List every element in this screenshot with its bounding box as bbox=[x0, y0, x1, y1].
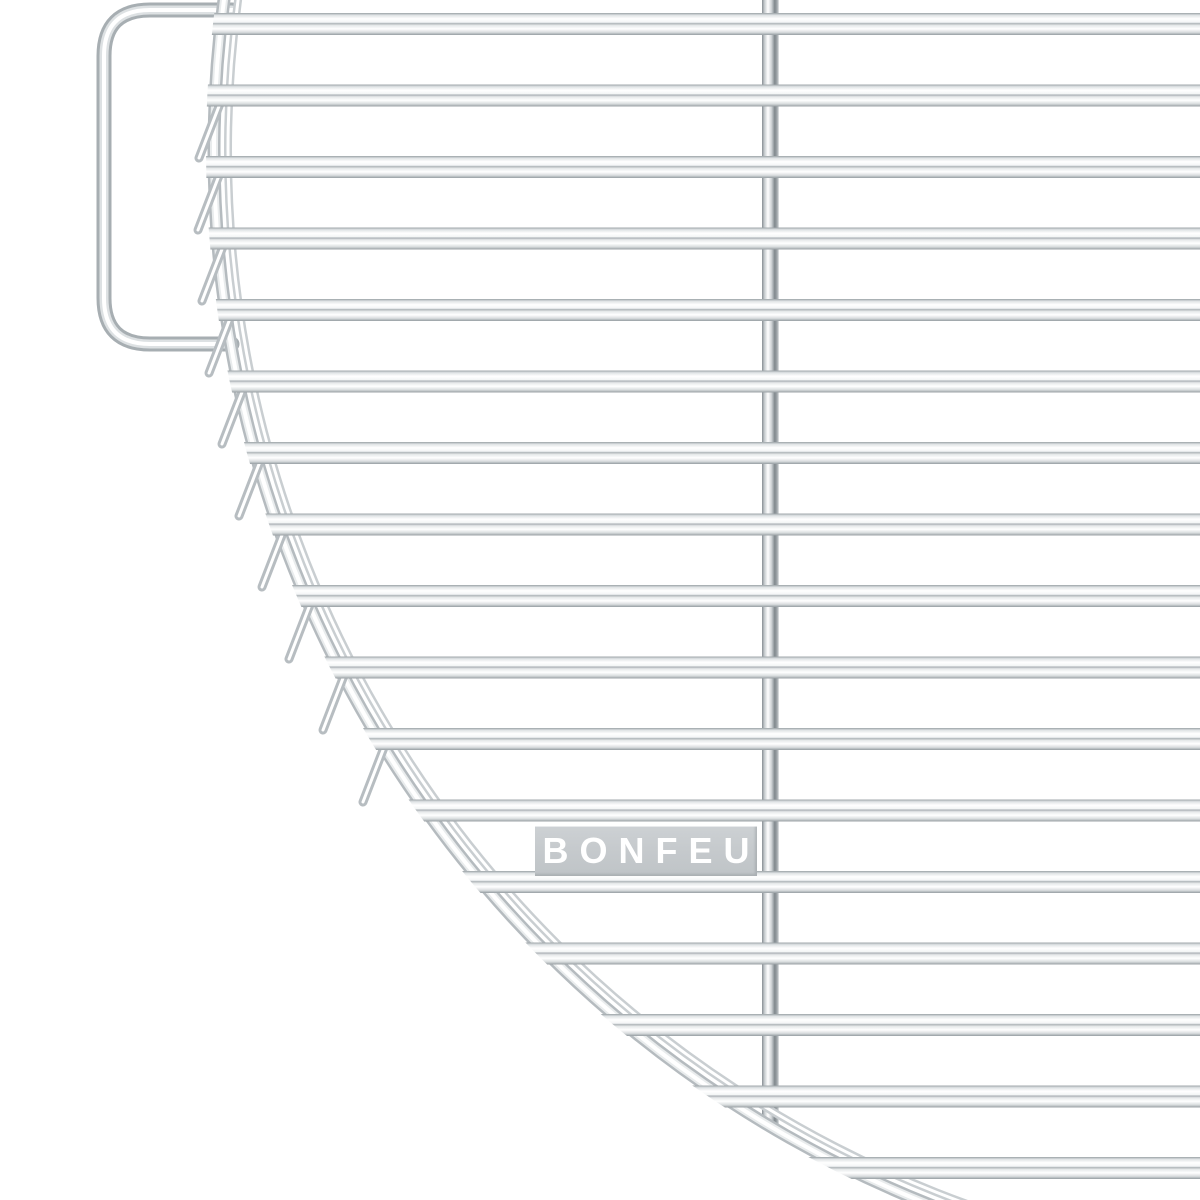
wire-end-stub bbox=[262, 530, 284, 587]
wire-end-stub bbox=[239, 459, 261, 516]
grate-wire bbox=[120, 1086, 1200, 1108]
grate-wire bbox=[120, 299, 1200, 321]
brand-badge-label: BONFEU bbox=[543, 833, 761, 869]
wire-end-stub bbox=[363, 745, 385, 802]
brand-badge: BONFEU bbox=[535, 826, 757, 876]
grate-wire bbox=[120, 585, 1200, 607]
grate-wire bbox=[120, 85, 1200, 107]
grate-wire bbox=[120, 156, 1200, 178]
grill-grate-illustration bbox=[0, 0, 1200, 1200]
grate-wire bbox=[120, 943, 1200, 965]
grate-wire bbox=[120, 13, 1200, 35]
grate-wire bbox=[120, 228, 1200, 250]
grate-wire bbox=[120, 1157, 1200, 1179]
grate-wire bbox=[120, 728, 1200, 750]
product-photo: BONFEU bbox=[0, 0, 1200, 1200]
grate-wires bbox=[120, 13, 1200, 1179]
grate-wire bbox=[120, 1014, 1200, 1036]
wire-end-stub bbox=[323, 673, 345, 730]
grate-wire bbox=[120, 514, 1200, 536]
grate-wire bbox=[120, 800, 1200, 822]
grate-wire bbox=[120, 442, 1200, 464]
grate-wire bbox=[120, 371, 1200, 393]
wire-end-stub bbox=[289, 602, 311, 659]
grate-wire bbox=[120, 657, 1200, 679]
